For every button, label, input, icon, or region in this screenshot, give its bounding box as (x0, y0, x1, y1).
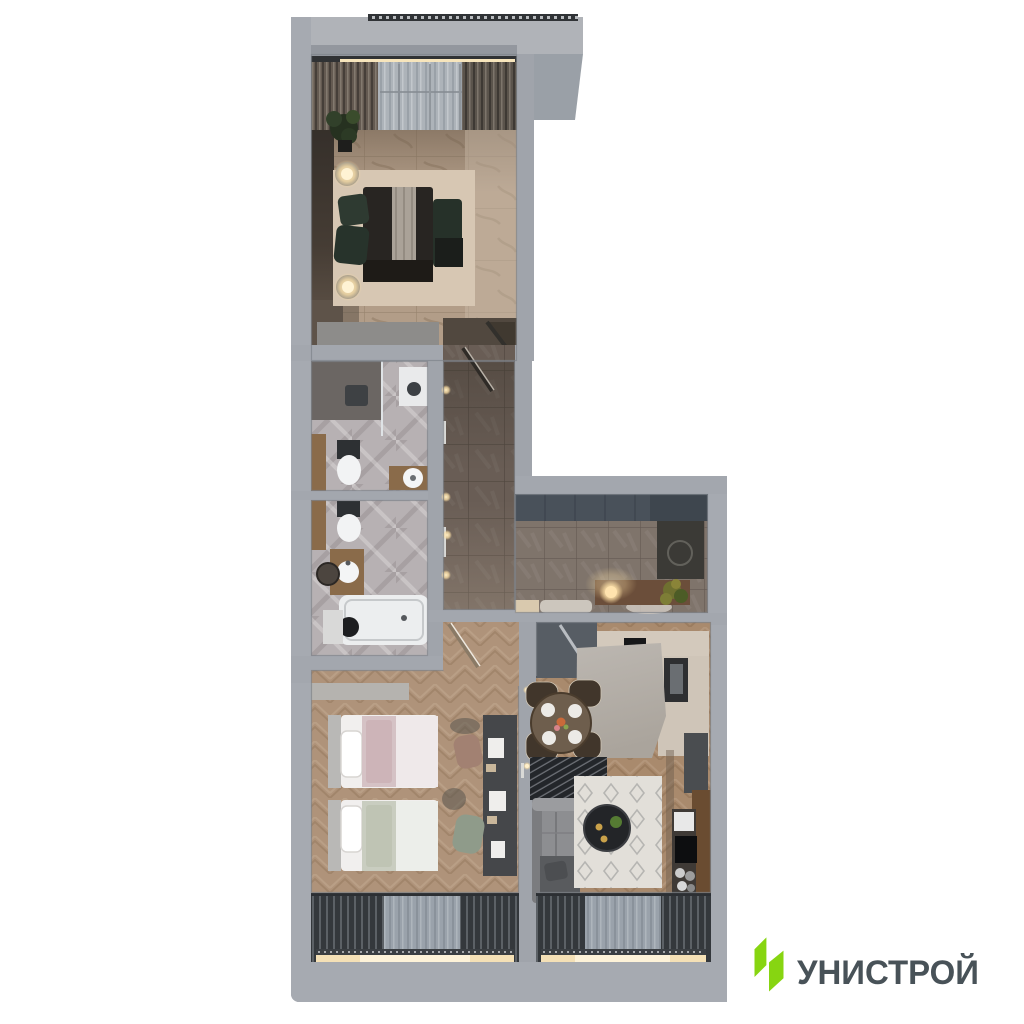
svg-text:УНИСТРОЙ: УНИСТРОЙ (797, 953, 979, 992)
